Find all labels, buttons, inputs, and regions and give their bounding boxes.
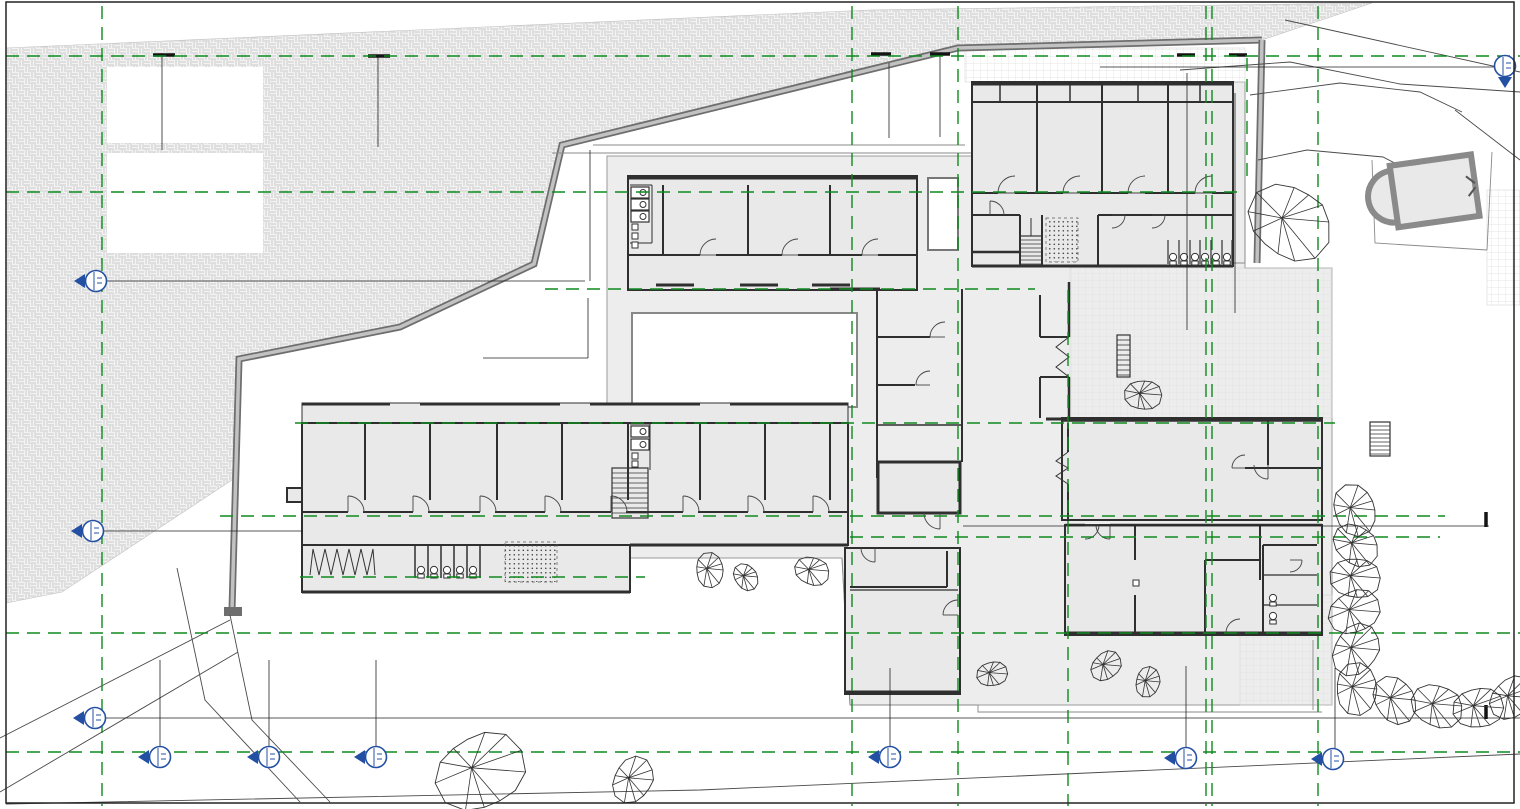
building-block bbox=[302, 423, 848, 545]
tree-symbol bbox=[435, 732, 525, 809]
stair-dashed-zone bbox=[505, 542, 557, 582]
white-room bbox=[928, 178, 958, 250]
tree-symbol bbox=[1334, 485, 1375, 537]
building-block bbox=[628, 176, 917, 290]
building-block bbox=[878, 462, 960, 513]
tree-symbol bbox=[613, 756, 654, 803]
chapel-building bbox=[1364, 152, 1480, 232]
grid-head-marker bbox=[868, 747, 901, 768]
building-block bbox=[302, 403, 848, 423]
building-block bbox=[845, 548, 960, 694]
site-plan-canvas bbox=[0, 0, 1520, 809]
toilet-fixture bbox=[456, 566, 463, 573]
toilet-fixture bbox=[1212, 253, 1219, 260]
tree-symbol bbox=[733, 564, 757, 591]
toilet-fixture bbox=[1201, 253, 1208, 260]
tree-symbol bbox=[1337, 663, 1376, 716]
toilet-fixture bbox=[430, 566, 437, 573]
building-block bbox=[287, 488, 302, 502]
grid-head-marker bbox=[1495, 56, 1516, 89]
grid-head-marker bbox=[247, 747, 280, 768]
toilet-fixture bbox=[1269, 612, 1276, 619]
toilet-fixture bbox=[1223, 253, 1230, 260]
building-block bbox=[1065, 525, 1322, 635]
toilet-fixture bbox=[1180, 253, 1187, 260]
grid-head-marker bbox=[1164, 748, 1197, 769]
grid-head-marker bbox=[138, 747, 171, 768]
toilet-fixture bbox=[1169, 253, 1176, 260]
toilet-fixture bbox=[1269, 594, 1276, 601]
stair-dashed-zone bbox=[1046, 218, 1078, 262]
tree-symbol bbox=[1330, 559, 1380, 597]
building-block bbox=[302, 545, 630, 592]
stair bbox=[1370, 422, 1390, 456]
toilet-fixture bbox=[417, 566, 424, 573]
site-plan-viewport bbox=[0, 0, 1520, 809]
toilet-fixture bbox=[443, 566, 450, 573]
tree-symbol bbox=[1411, 685, 1462, 728]
toilet-fixture bbox=[469, 566, 476, 573]
tree-symbol bbox=[795, 557, 829, 585]
courtyard-void bbox=[632, 313, 857, 407]
grid-head-marker bbox=[73, 708, 106, 729]
tree-symbol bbox=[1489, 676, 1520, 719]
tree-symbol bbox=[1373, 676, 1416, 724]
tree-symbol bbox=[1328, 590, 1380, 634]
grid-head-marker bbox=[354, 747, 387, 768]
toilet-fixture bbox=[1191, 253, 1198, 260]
